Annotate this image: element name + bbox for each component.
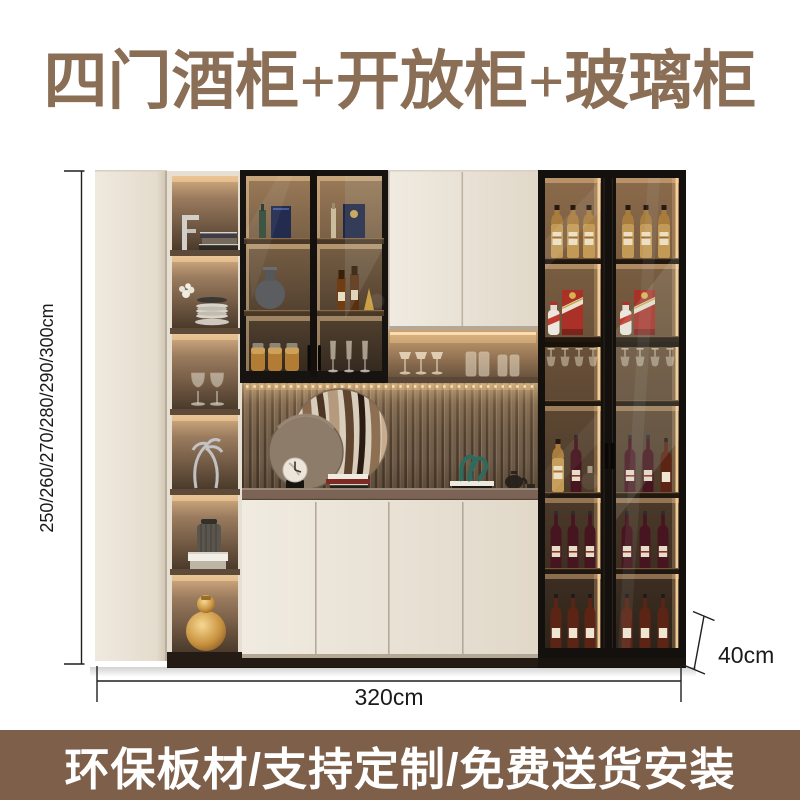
wine-cabinet-handle	[605, 443, 609, 469]
counter-top	[242, 488, 538, 500]
page: 四门酒柜+开放柜+玻璃柜	[0, 0, 800, 800]
table-clock	[283, 458, 307, 489]
open-shelving-column	[167, 171, 242, 668]
lower-white-doors	[242, 500, 538, 668]
promo-banner-text: 环保板材/支持定制/免费送货安装	[64, 733, 735, 798]
wine-display-cabinets	[538, 170, 686, 668]
glass-display-cabinet	[240, 170, 388, 383]
product-figure: 250/260/270/280/290/300cm 320cm 40cm	[0, 0, 800, 800]
cabinet-render	[0, 0, 800, 800]
floor-shadow	[90, 667, 696, 677]
promo-banner: 环保板材/支持定制/免费送货安装	[0, 730, 800, 800]
wine-cabinet-combination	[90, 170, 696, 677]
stacked-books	[326, 474, 370, 489]
upper-white-doors	[388, 170, 538, 330]
height-dimension-label: 250/260/270/280/290/300cm	[37, 248, 59, 588]
left-tall-panel	[95, 170, 168, 661]
glass-niche	[388, 330, 538, 383]
width-dimension-label: 320cm	[318, 684, 460, 711]
slat-wall	[242, 383, 538, 490]
depth-dimension-label: 40cm	[718, 642, 774, 669]
